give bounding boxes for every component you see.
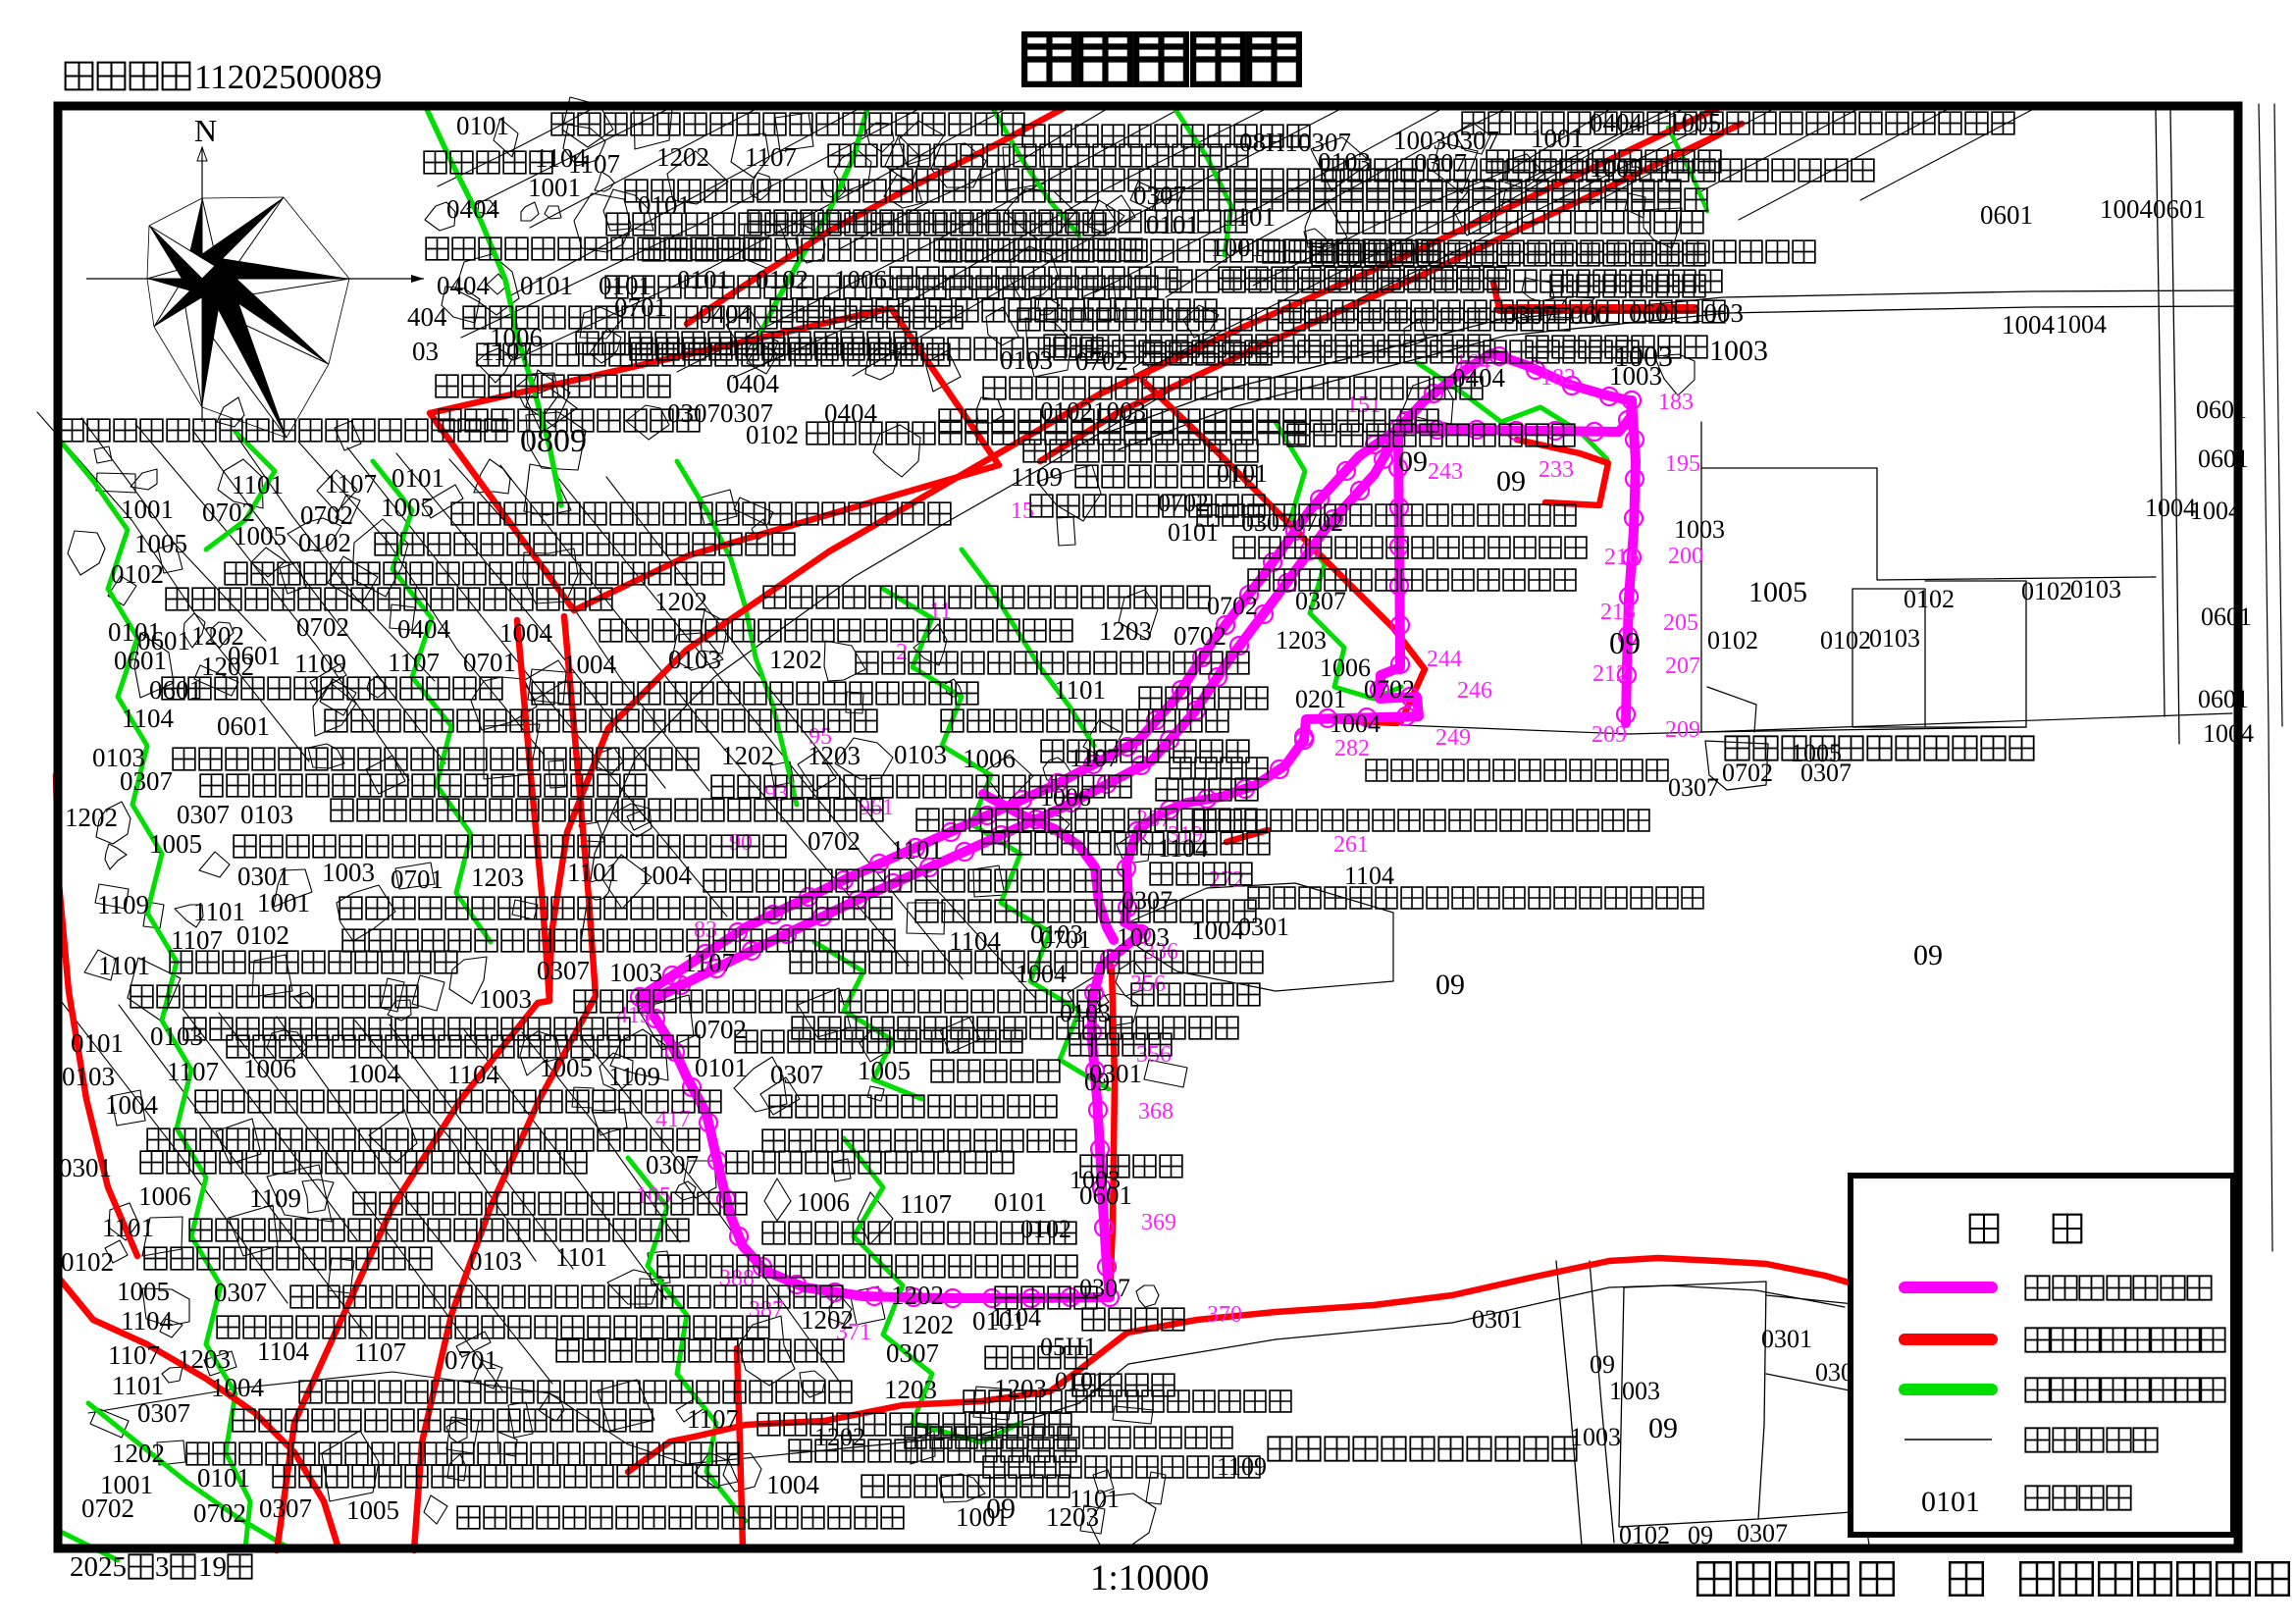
svg-text:0601: 0601 — [1980, 200, 2033, 230]
svg-text:0601: 0601 — [228, 641, 281, 670]
svg-text:1001: 1001 — [1211, 233, 1264, 262]
svg-text:1004: 1004 — [105, 1090, 159, 1120]
svg-text:1004: 1004 — [499, 618, 553, 648]
svg-text:1109: 1109 — [1011, 462, 1063, 492]
svg-text:1003: 1003 — [1570, 1423, 1621, 1451]
svg-text:216: 216 — [1604, 545, 1640, 570]
svg-text:1001: 1001 — [528, 173, 581, 202]
svg-text:0103: 0103 — [1000, 345, 1053, 375]
svg-text:2: 2 — [896, 640, 908, 665]
svg-text:0307: 0307 — [1668, 773, 1719, 802]
svg-text:1005: 1005 — [234, 521, 287, 550]
svg-text:182: 182 — [1540, 365, 1576, 391]
svg-text:0702: 0702 — [1174, 621, 1226, 651]
svg-text:370: 370 — [1207, 1302, 1242, 1328]
svg-text:1004: 1004 — [2002, 310, 2056, 340]
svg-text:1107: 1107 — [683, 948, 735, 977]
svg-text:0101: 0101 — [71, 1028, 124, 1058]
svg-text:1109: 1109 — [249, 1183, 301, 1213]
svg-text:1003: 1003 — [322, 858, 375, 887]
svg-text:1006: 1006 — [963, 744, 1016, 773]
svg-text:0101: 0101 — [638, 190, 691, 220]
svg-text:1003: 1003 — [1117, 922, 1170, 952]
svg-text:0404: 0404 — [824, 398, 878, 428]
svg-text:1005: 1005 — [149, 829, 202, 859]
svg-text:0102: 0102 — [111, 559, 164, 589]
svg-text:0404: 0404 — [1590, 108, 1644, 137]
svg-text:1004: 1004 — [1016, 960, 1067, 988]
svg-text:0404: 0404 — [437, 271, 491, 300]
svg-text:1003: 1003 — [1709, 335, 1768, 367]
svg-text:0103: 0103 — [1318, 147, 1371, 177]
svg-text:0102: 0102 — [1820, 626, 1871, 655]
svg-text:0702: 0702 — [694, 1015, 747, 1044]
svg-text:209: 209 — [1665, 717, 1700, 743]
svg-text:0301: 0301 — [1238, 913, 1289, 941]
svg-text:0103: 0103 — [150, 1022, 203, 1051]
svg-text:1101: 1101 — [112, 1371, 164, 1400]
svg-text:2025: 2025 — [70, 1551, 127, 1583]
svg-text:0702: 0702 — [1722, 759, 1773, 787]
svg-text:1101: 1101 — [232, 470, 284, 499]
svg-text:1005: 1005 — [346, 1495, 399, 1525]
svg-text:1203: 1203 — [1099, 616, 1152, 646]
svg-text:207: 207 — [1665, 654, 1700, 679]
svg-text:1003: 1003 — [1070, 1166, 1121, 1194]
svg-text:0102: 0102 — [1904, 585, 1955, 613]
svg-text:1107: 1107 — [900, 1189, 952, 1219]
svg-text:1004: 1004 — [347, 1059, 401, 1088]
svg-text:0103: 0103 — [1869, 624, 1920, 653]
svg-text:1006: 1006 — [243, 1054, 296, 1083]
svg-text:1101: 1101 — [102, 1213, 154, 1242]
svg-text:1005: 1005 — [858, 1056, 911, 1085]
svg-text:0101: 0101 — [1921, 1486, 1980, 1518]
svg-text:1004: 1004 — [2190, 497, 2241, 525]
svg-text:0101: 0101 — [520, 271, 573, 300]
svg-text:1107: 1107 — [325, 469, 377, 498]
svg-text:0101: 0101 — [994, 1187, 1047, 1217]
svg-text:200: 200 — [1668, 544, 1703, 569]
svg-text:03: 03 — [412, 337, 439, 366]
svg-text:1004: 1004 — [2056, 310, 2107, 339]
svg-text:0307: 0307 — [1414, 148, 1467, 178]
svg-text:0701: 0701 — [1040, 925, 1091, 954]
svg-text:0307: 0307 — [137, 1398, 190, 1428]
svg-text:0702: 0702 — [808, 826, 861, 856]
svg-text:1101: 1101 — [891, 835, 943, 864]
svg-text:1202: 1202 — [654, 587, 707, 616]
svg-text:0102: 0102 — [756, 265, 809, 294]
svg-text:213: 213 — [1600, 600, 1636, 625]
svg-text:1203: 1203 — [471, 863, 524, 892]
svg-text:1202: 1202 — [901, 1310, 954, 1339]
svg-text:0702: 0702 — [1075, 346, 1128, 376]
svg-text:0101: 0101 — [1168, 518, 1219, 547]
svg-text:1005: 1005 — [1748, 576, 1807, 608]
svg-text:1202: 1202 — [814, 1423, 865, 1451]
svg-text:1006: 1006 — [797, 1187, 850, 1217]
svg-text:1003: 1003 — [1609, 361, 1662, 391]
svg-text:0307: 0307 — [1122, 886, 1173, 915]
svg-text:1005: 1005 — [134, 529, 187, 558]
svg-text:1001: 1001 — [1531, 124, 1584, 153]
svg-text:1101: 1101 — [567, 858, 619, 887]
svg-text:261: 261 — [1333, 832, 1369, 858]
svg-text:0301: 0301 — [1761, 1325, 1812, 1353]
svg-text:0102: 0102 — [236, 920, 289, 950]
svg-text:1004: 1004 — [2145, 494, 2196, 522]
svg-text:09: 09 — [1648, 1412, 1678, 1444]
svg-text:209: 209 — [1592, 722, 1627, 748]
svg-text:060: 060 — [1570, 300, 1610, 330]
svg-text:1203: 1203 — [178, 1344, 231, 1374]
svg-text:0307: 0307 — [259, 1493, 312, 1523]
svg-text:1109: 1109 — [294, 649, 346, 678]
svg-text:0601: 0601 — [149, 675, 202, 705]
svg-text:0307: 0307 — [537, 956, 590, 985]
svg-text:1104: 1104 — [257, 1336, 309, 1366]
svg-text:1202: 1202 — [769, 645, 822, 674]
svg-text:0307: 0307 — [1800, 759, 1852, 787]
svg-text:0102: 0102 — [1020, 1215, 1071, 1243]
svg-text:3: 3 — [155, 1551, 170, 1583]
svg-text:0404: 0404 — [397, 614, 451, 644]
svg-text:0404: 0404 — [1452, 363, 1506, 393]
svg-text:249: 249 — [1435, 725, 1471, 751]
svg-text:1005: 1005 — [540, 1053, 593, 1082]
svg-text:1107: 1107 — [388, 648, 440, 677]
svg-text:233: 233 — [1539, 457, 1574, 483]
svg-text:0702: 0702 — [300, 500, 353, 530]
svg-text:1101: 1101 — [98, 951, 150, 980]
svg-text:0307: 0307 — [770, 1060, 823, 1089]
svg-text:1107: 1107 — [687, 1404, 739, 1434]
svg-text:1203: 1203 — [1276, 626, 1327, 655]
svg-text:404: 404 — [407, 302, 447, 332]
svg-text:0307: 0307 — [646, 1150, 699, 1179]
svg-text:0404: 0404 — [446, 194, 500, 224]
svg-text:1004: 1004 — [563, 650, 617, 679]
svg-text:0301: 0301 — [1472, 1305, 1523, 1334]
svg-text:N: N — [194, 113, 217, 148]
svg-text:1004: 1004 — [639, 861, 693, 890]
svg-text:1101: 1101 — [1054, 675, 1106, 705]
svg-text:0404: 0404 — [726, 369, 780, 398]
svg-text:1104: 1104 — [991, 1303, 1041, 1332]
svg-text:0307: 0307 — [120, 766, 173, 796]
svg-text:1005: 1005 — [117, 1277, 170, 1306]
svg-text:0103: 0103 — [2070, 575, 2121, 603]
svg-text:1004: 1004 — [211, 1373, 265, 1402]
svg-text:1004: 1004 — [1191, 916, 1245, 945]
svg-text:1104: 1104 — [1158, 834, 1208, 863]
svg-text:1006: 1006 — [490, 323, 543, 352]
svg-text:0102: 0102 — [1707, 626, 1758, 655]
svg-text:1203: 1203 — [994, 1374, 1047, 1403]
svg-text:0702: 0702 — [296, 612, 349, 642]
svg-text:0101: 0101 — [695, 1053, 748, 1082]
svg-text:1006: 1006 — [1040, 783, 1091, 812]
svg-text:246: 246 — [1457, 678, 1492, 704]
svg-text:1107: 1107 — [1070, 744, 1120, 772]
svg-text:0702: 0702 — [81, 1493, 134, 1523]
svg-text:1003: 1003 — [1609, 1377, 1660, 1405]
svg-text:19: 19 — [198, 1551, 227, 1583]
svg-text:10040601: 10040601 — [2100, 194, 2206, 224]
svg-text:0101: 0101 — [1217, 459, 1268, 488]
svg-text:1004: 1004 — [766, 1470, 820, 1499]
svg-text:09: 09 — [1084, 1068, 1110, 1096]
svg-text:0101: 0101 — [1146, 210, 1199, 239]
svg-text:0307: 0307 — [1503, 300, 1556, 330]
svg-text:0702: 0702 — [1158, 489, 1209, 517]
svg-text:1:10000: 1:10000 — [1090, 1558, 1209, 1598]
svg-text:0102: 0102 — [298, 528, 351, 557]
svg-text:0102: 0102 — [61, 1247, 114, 1277]
svg-text:1109: 1109 — [608, 1062, 660, 1091]
svg-text:0301: 0301 — [237, 862, 290, 891]
svg-text:1101: 1101 — [1070, 1485, 1120, 1513]
svg-text:282: 282 — [1334, 736, 1370, 761]
svg-text:1006: 1006 — [834, 265, 887, 294]
svg-text:0101: 0101 — [391, 463, 444, 493]
svg-text:0601: 0601 — [137, 626, 190, 655]
svg-text:0103: 0103 — [469, 1246, 522, 1276]
svg-text:244: 244 — [1427, 647, 1462, 672]
svg-text:1202: 1202 — [112, 1439, 165, 1468]
svg-text:09: 09 — [1590, 1350, 1615, 1379]
svg-text:1104: 1104 — [1344, 862, 1394, 890]
svg-text:11202500089: 11202500089 — [194, 58, 382, 96]
svg-text:0103: 0103 — [894, 740, 947, 769]
svg-text:0301: 0301 — [59, 1153, 112, 1182]
svg-text:05H1: 05H1 — [1040, 1333, 1097, 1361]
svg-text:1109: 1109 — [1217, 1452, 1267, 1481]
svg-text:1001: 1001 — [257, 888, 310, 917]
svg-text:0601: 0601 — [217, 711, 270, 741]
svg-text:1001: 1001 — [121, 495, 174, 524]
svg-text:0103: 0103 — [240, 800, 293, 829]
svg-text:1101: 1101 — [555, 1242, 607, 1272]
svg-text:0307: 0307 — [214, 1278, 267, 1307]
svg-text:1101: 1101 — [1224, 202, 1276, 232]
svg-text:1004: 1004 — [1330, 709, 1381, 738]
svg-text:0702: 0702 — [193, 1498, 246, 1528]
svg-text:1003: 1003 — [479, 984, 532, 1014]
svg-text:0701: 0701 — [614, 292, 667, 322]
svg-text:0307: 0307 — [1737, 1519, 1788, 1547]
svg-text:212: 212 — [1592, 661, 1628, 687]
svg-text:1003: 1003 — [609, 958, 662, 987]
svg-text:0809: 0809 — [520, 423, 587, 459]
svg-text:0307: 0307 — [1295, 587, 1346, 615]
svg-text:1104: 1104 — [447, 1060, 499, 1089]
svg-text:1203: 1203 — [808, 741, 861, 770]
svg-text:0103: 0103 — [1060, 999, 1111, 1027]
svg-text:369: 369 — [1141, 1210, 1176, 1235]
svg-text:0601: 0601 — [2201, 602, 2252, 631]
svg-text:0101: 0101 — [456, 111, 509, 140]
svg-text:1006: 1006 — [138, 1181, 191, 1211]
svg-text:356: 356 — [1130, 971, 1166, 997]
svg-text:1005: 1005 — [1590, 153, 1643, 183]
svg-text:09: 09 — [1913, 939, 1943, 971]
svg-text:0701: 0701 — [391, 864, 444, 894]
svg-text:0103: 0103 — [62, 1062, 115, 1091]
svg-text:205: 205 — [1663, 610, 1698, 636]
svg-text:1107: 1107 — [167, 1057, 219, 1086]
svg-text:1202: 1202 — [891, 1281, 944, 1310]
svg-text:0307: 0307 — [177, 800, 230, 829]
svg-text:1107: 1107 — [108, 1340, 160, 1370]
svg-text:09: 09 — [1609, 625, 1641, 660]
svg-text:1202: 1202 — [65, 803, 118, 832]
svg-text:243: 243 — [1428, 459, 1463, 485]
svg-text:09: 09 — [1435, 969, 1465, 1001]
svg-text:0702: 0702 — [1364, 675, 1415, 704]
svg-text:1005: 1005 — [1668, 108, 1721, 137]
svg-text:183: 183 — [1658, 390, 1694, 415]
svg-text:1003: 1003 — [1674, 515, 1725, 544]
svg-text:0702: 0702 — [1207, 592, 1258, 620]
svg-text:09: 09 — [1398, 445, 1428, 478]
svg-text:1107: 1107 — [745, 142, 797, 172]
svg-text:0101: 0101 — [197, 1463, 250, 1493]
svg-text:195: 195 — [1665, 451, 1700, 477]
svg-text:1202: 1202 — [656, 142, 709, 172]
svg-text:0307: 0307 — [1133, 181, 1186, 210]
svg-text:1005: 1005 — [381, 493, 434, 522]
svg-text:1203: 1203 — [884, 1375, 937, 1404]
svg-text:0102: 0102 — [2021, 577, 2072, 605]
svg-text:1004: 1004 — [2203, 719, 2254, 748]
svg-text:0102: 0102 — [746, 420, 799, 449]
svg-text:1109: 1109 — [97, 890, 149, 919]
svg-text:09: 09 — [1496, 465, 1526, 498]
svg-text:0701: 0701 — [444, 1345, 497, 1375]
svg-text:1107: 1107 — [354, 1337, 406, 1367]
svg-text:1202: 1202 — [721, 741, 774, 770]
svg-text:03070702: 03070702 — [1241, 508, 1343, 537]
svg-text:1104: 1104 — [122, 704, 174, 733]
svg-text:0307: 0307 — [886, 1338, 939, 1368]
svg-text:1104: 1104 — [121, 1306, 173, 1336]
svg-text:0404: 0404 — [699, 299, 753, 329]
svg-text:1202: 1202 — [801, 1305, 854, 1335]
svg-text:0307: 0307 — [1079, 1274, 1130, 1302]
svg-text:09: 09 — [986, 1493, 1016, 1525]
svg-text:368: 368 — [1138, 1099, 1174, 1125]
svg-text:419: 419 — [616, 1003, 652, 1028]
svg-text:0103: 0103 — [668, 645, 721, 674]
svg-text:0701: 0701 — [463, 648, 516, 677]
